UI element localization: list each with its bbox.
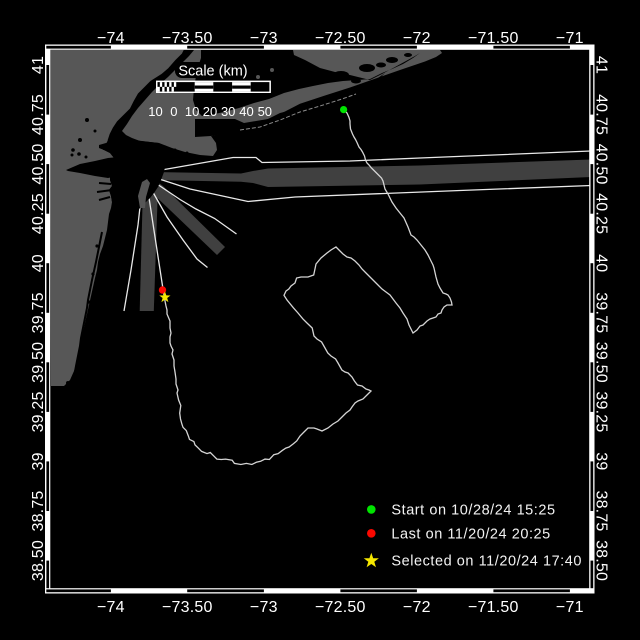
svg-text:39.25: 39.25 xyxy=(593,391,610,432)
svg-text:40.50: 40.50 xyxy=(30,144,47,185)
svg-text:20: 20 xyxy=(203,104,217,119)
svg-text:10: 10 xyxy=(185,104,199,119)
svg-text:38.75: 38.75 xyxy=(30,490,47,531)
svg-text:30: 30 xyxy=(221,104,235,119)
svg-text:40.75: 40.75 xyxy=(30,94,47,135)
svg-text:41: 41 xyxy=(593,56,610,74)
svg-text:−73.50: −73.50 xyxy=(162,30,213,47)
svg-text:0: 0 xyxy=(170,104,177,119)
svg-text:39.75: 39.75 xyxy=(593,292,610,333)
svg-text:Selected on 11/20/24 17:40: Selected on 11/20/24 17:40 xyxy=(391,554,582,570)
svg-text:38.50: 38.50 xyxy=(593,540,610,581)
svg-text:−73: −73 xyxy=(250,599,278,616)
svg-text:50: 50 xyxy=(258,104,272,119)
svg-text:40: 40 xyxy=(239,104,253,119)
svg-text:−72.50: −72.50 xyxy=(315,599,366,616)
svg-text:40.75: 40.75 xyxy=(593,94,610,135)
svg-text:40: 40 xyxy=(593,254,610,272)
svg-text:−72: −72 xyxy=(403,30,431,47)
svg-text:−71: −71 xyxy=(556,30,584,47)
svg-text:−73: −73 xyxy=(250,30,278,47)
svg-text:Last on 11/20/24 20:25: Last on 11/20/24 20:25 xyxy=(391,527,550,543)
svg-text:−74: −74 xyxy=(97,599,125,616)
svg-text:40.25: 40.25 xyxy=(30,193,47,234)
svg-text:39: 39 xyxy=(593,452,610,470)
svg-text:−73.50: −73.50 xyxy=(162,599,213,616)
svg-text:39.50: 39.50 xyxy=(30,342,47,383)
svg-text:39.75: 39.75 xyxy=(30,292,47,333)
svg-text:39.50: 39.50 xyxy=(593,342,610,383)
svg-text:Scale (km): Scale (km) xyxy=(178,64,247,80)
svg-text:−72: −72 xyxy=(403,599,431,616)
svg-text:38.75: 38.75 xyxy=(593,490,610,531)
svg-text:−71.50: −71.50 xyxy=(468,30,519,47)
svg-text:−71.50: −71.50 xyxy=(468,599,519,616)
svg-text:40: 40 xyxy=(30,254,47,272)
svg-text:40.25: 40.25 xyxy=(593,193,610,234)
svg-text:10: 10 xyxy=(148,104,162,119)
svg-text:40.50: 40.50 xyxy=(593,144,610,185)
svg-text:−71: −71 xyxy=(556,599,584,616)
svg-text:39: 39 xyxy=(30,452,47,470)
svg-text:39.25: 39.25 xyxy=(30,391,47,432)
svg-text:−74: −74 xyxy=(97,30,125,47)
svg-text:38.50: 38.50 xyxy=(30,540,47,581)
svg-text:41: 41 xyxy=(30,56,47,74)
svg-text:−72.50: −72.50 xyxy=(315,30,366,47)
svg-text:Start on 10/28/24 15:25: Start on 10/28/24 15:25 xyxy=(391,503,555,519)
